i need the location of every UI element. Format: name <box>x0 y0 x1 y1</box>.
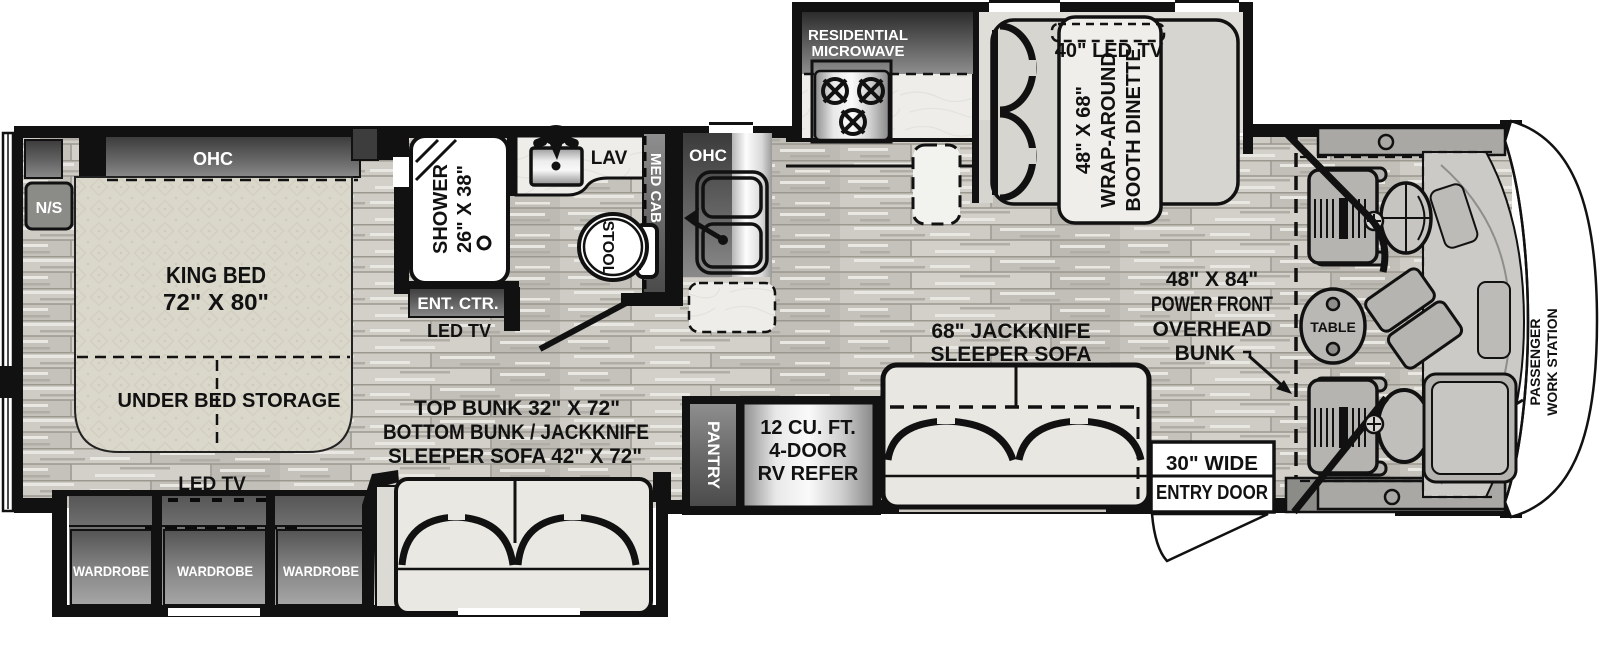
svg-text:LED TV: LED TV <box>427 321 491 341</box>
svg-text:TABLE: TABLE <box>1310 319 1356 335</box>
svg-text:12 CU. FT.: 12 CU. FT. <box>760 417 856 439</box>
svg-text:UNDER BED STORAGE: UNDER BED STORAGE <box>118 390 341 412</box>
svg-text:30" WIDE: 30" WIDE <box>1166 453 1258 475</box>
svg-text:SHOWER: SHOWER <box>430 163 452 254</box>
svg-text:26" X 38": 26" X 38" <box>454 165 476 253</box>
svg-text:OVERHEAD: OVERHEAD <box>1152 318 1271 341</box>
svg-text:BOTTOM BUNK / JACKKNIFE: BOTTOM BUNK / JACKKNIFE <box>383 421 649 444</box>
svg-text:BOOTH DINETTE: BOOTH DINETTE <box>1123 48 1145 211</box>
svg-text:4-DOOR: 4-DOOR <box>769 440 847 462</box>
svg-text:SLEEPER SOFA: SLEEPER SOFA <box>930 343 1091 366</box>
svg-text:WARDROBE: WARDROBE <box>283 563 359 579</box>
svg-text:MICROWAVE: MICROWAVE <box>811 43 904 60</box>
svg-text:LAV: LAV <box>591 148 628 169</box>
svg-text:N/S: N/S <box>36 200 63 217</box>
svg-text:BUNK: BUNK <box>1175 342 1236 365</box>
svg-text:STOOL: STOOL <box>599 221 616 276</box>
svg-text:MED CAB: MED CAB <box>647 153 664 223</box>
svg-text:PANTRY: PANTRY <box>704 421 723 490</box>
svg-text:68" JACKKNIFE: 68" JACKKNIFE <box>931 320 1090 343</box>
svg-text:SLEEPER SOFA 42" X 72": SLEEPER SOFA 42" X 72" <box>388 445 642 468</box>
svg-text:KING BED: KING BED <box>166 262 266 288</box>
svg-text:WRAP-AROUND: WRAP-AROUND <box>1098 52 1120 208</box>
svg-text:POWER FRONT: POWER FRONT <box>1151 293 1273 316</box>
svg-text:OHC: OHC <box>193 149 233 169</box>
svg-text:WARDROBE: WARDROBE <box>73 563 149 579</box>
svg-text:RV REFER: RV REFER <box>758 463 859 485</box>
svg-text:WARDROBE: WARDROBE <box>177 563 253 579</box>
svg-text:OHC: OHC <box>689 146 727 165</box>
svg-text:ENT. CTR.: ENT. CTR. <box>417 294 498 313</box>
svg-text:72" X 80": 72" X 80" <box>163 289 269 315</box>
svg-text:PASSENGER: PASSENGER <box>1527 319 1543 406</box>
svg-text:48" X 68": 48" X 68" <box>1073 86 1095 174</box>
svg-text:RESIDENTIAL: RESIDENTIAL <box>808 27 908 44</box>
svg-text:WORK STATION: WORK STATION <box>1544 308 1560 416</box>
svg-text:ENTRY DOOR: ENTRY DOOR <box>1156 482 1268 504</box>
svg-text:48" X 84": 48" X 84" <box>1166 268 1258 291</box>
svg-text:TOP BUNK 32" X 72": TOP BUNK 32" X 72" <box>414 397 620 420</box>
